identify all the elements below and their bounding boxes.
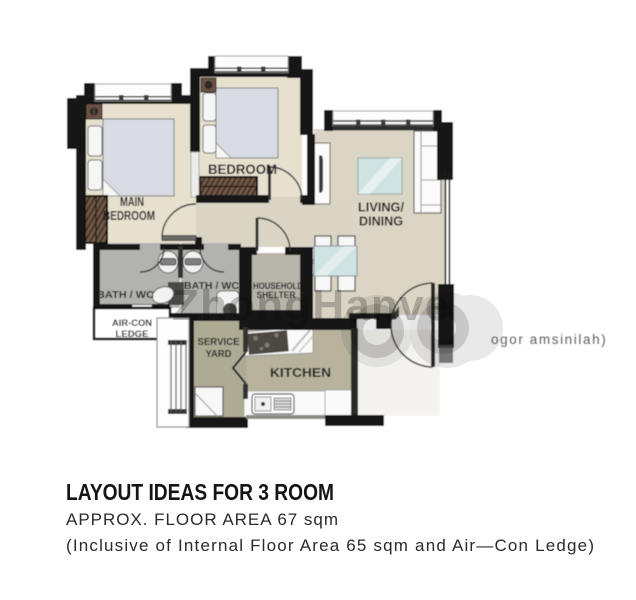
svg-text:MAIN: MAIN bbox=[120, 195, 144, 209]
svg-text:SERVICE: SERVICE bbox=[198, 336, 240, 348]
svg-text:ZhongHanve: ZhongHanve bbox=[172, 281, 450, 330]
svg-text:AIR-CON: AIR-CON bbox=[112, 318, 152, 328]
svg-text:BEDROOM: BEDROOM bbox=[208, 161, 277, 177]
svg-text:DINING: DINING bbox=[359, 214, 403, 229]
svg-text:LAYOUT IDEAS FOR 3 ROOM: LAYOUT IDEAS FOR 3 ROOM bbox=[66, 479, 334, 505]
svg-text:APPROX. FLOOR AREA 67 sqm: APPROX. FLOOR AREA 67 sqm bbox=[66, 510, 338, 529]
svg-text:LIVING/: LIVING/ bbox=[358, 200, 404, 215]
svg-text:BEDROOM: BEDROOM bbox=[103, 209, 155, 223]
svg-text:BATH / WC: BATH / WC bbox=[97, 289, 154, 301]
svg-text:LEDGE: LEDGE bbox=[116, 329, 149, 339]
svg-text:YARD: YARD bbox=[206, 348, 232, 360]
svg-text:KITCHEN: KITCHEN bbox=[270, 365, 331, 380]
svg-text:ogor amsinilah): ogor amsinilah) bbox=[491, 332, 607, 347]
svg-text:(Inclusive of Internal Floor A: (Inclusive of Internal Floor Area 65 sqm… bbox=[66, 536, 594, 555]
